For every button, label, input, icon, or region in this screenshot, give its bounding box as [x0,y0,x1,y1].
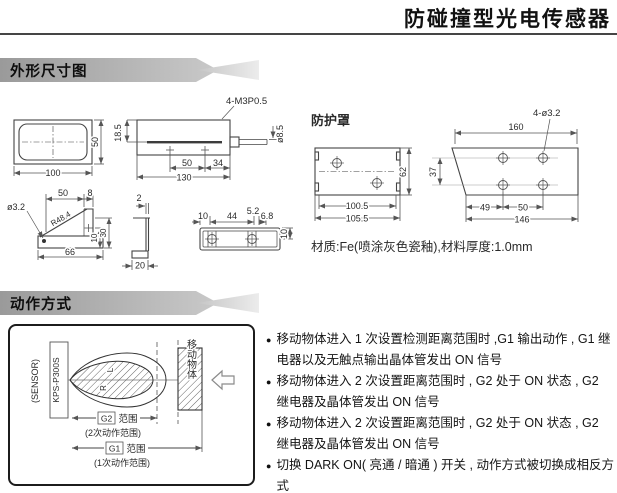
bullet-icon: ● [266,329,271,371]
g1-range-label: 范围 [126,443,145,455]
dim-arm-66: 66 [65,247,75,257]
approach-arrow-icon [212,371,234,389]
zone-label-r: R [99,385,108,391]
label-screws: 4-M3P0.5 [226,96,267,107]
dimension-drawings: 100 50 4-M3P0.5 [0,88,617,288]
bullet-icon: ● [266,413,271,455]
drawing-z-profile: 2 20 [122,193,158,271]
operation-diagram: (SENSOR) KPS-P300S L R 移动物体 G2 范围 (2次动作范… [10,326,253,484]
drawing-front-view: 100 50 [14,120,104,178]
note-item: ● 切换 DARK ON( 亮通 / 暗通 ) 开关 , 动作方式被切换成相反方… [266,455,614,493]
drawing-side-view: 4-M3P0.5 18.5 50 34 130 ø8.5 [113,96,285,183]
dim-arm-30: 30 [99,228,108,237]
datasheet-page: 防碰撞型光电传感器 外形尺寸图 [0,0,617,493]
dim-side-130: 130 [176,173,191,183]
dim-profile-20: 20 [135,261,145,271]
dim-cover-100-5: 100.5 [346,201,369,211]
dim-cover-62: 62 [398,167,408,177]
operation-notes: ● 移动物体进入 1 次设置检测距离范围时 ,G1 输出动作 , G1 继电器以… [266,329,614,493]
g1-sub-label: (1次动作范围) [94,457,150,468]
section-header-dimensions: 外形尺寸图 [10,60,88,81]
note-text: 切换 DARK ON( 亮通 / 暗通 ) 开关 , 动作方式被切换成相反方式 [276,455,614,493]
sensor-model-label: KPS-P300S [51,357,61,403]
material-note: 材质:Fe(喷涂灰色瓷釉),材料厚度:1.0mm [311,239,533,254]
sensor-label: (SENSOR) [30,359,40,403]
dim-front-height: 50 [90,137,100,147]
dim-clamp-10a: 10 [198,211,208,221]
dim-plate-160: 160 [508,122,523,132]
title-underline [0,33,617,35]
dim-side-18-5: 18.5 [113,124,123,142]
dim-arm-hole: ø3.2 [7,202,25,212]
dim-clamp-44: 44 [227,211,237,221]
dim-clamp-5-2: 5.2 [247,206,260,216]
dim-plate-37: 37 [428,167,438,177]
dim-arm-radius: R48.4 [49,209,72,228]
g2-sub-label: (2次动作范围) [85,427,141,438]
drawing-clamp-front: 10 44 5.2 6.8 10 [192,206,293,250]
banner-arrow-icon [197,60,259,80]
dim-arm-8: 8 [87,188,92,198]
section-banner-operation: 动作方式 [0,291,617,315]
section-banner-dimensions: 外形尺寸图 [0,58,617,82]
dim-clamp-10b: 10 [279,229,289,239]
dim-arm-50: 50 [58,188,68,198]
label-protective-cover: 防护罩 [311,113,350,128]
g2-range-label: 范围 [118,413,137,425]
note-text: 移动物体进入 2 次设置距离范围时 , G2 处于 ON 状态 , G2 继电器… [276,413,614,455]
note-item: ● 移动物体进入 2 次设置距离范围时 , G2 处于 ON 状态 , G2 继… [266,413,614,455]
moving-object-label: 移动物体 [185,338,197,380]
banner-arrow-icon [197,293,259,313]
drawing-mounting-plate: 4-ø3.2 160 37 49 50 146 [428,108,578,225]
section-header-operation: 动作方式 [10,293,72,314]
dim-cover-105-5: 105.5 [346,214,369,224]
page-title: 防碰撞型光电传感器 [404,3,611,33]
g1-tag: G1 [109,444,121,454]
drawing-protective-cover: 防护罩 100.5 105.5 62 [311,113,412,224]
note-text: 移动物体进入 1 次设置检测距离范围时 ,G1 输出动作 , G1 继电器以及无… [276,329,614,371]
dim-plate-49: 49 [480,203,490,213]
dim-arm-10: 10 [90,233,99,242]
dim-front-width: 100 [45,168,60,178]
zone-label-l: L [106,367,115,372]
dim-profile-2: 2 [136,193,141,203]
dim-side-50: 50 [182,158,192,168]
dim-cable-dia: ø8.5 [275,125,285,143]
dim-plate-50: 50 [518,203,528,213]
banner-band: 动作方式 [0,291,218,315]
drawing-arm-bracket: ø3.2 50 8 R48.4 10 30 66 [7,188,112,260]
bullet-icon: ● [266,455,271,493]
g2-tag: G2 [101,414,113,424]
note-text: 移动物体进入 2 次设置距离范围时 , G2 处于 ON 状态 , G2 继电器… [276,371,614,413]
dim-side-34: 34 [213,158,223,168]
label-plate-holes: 4-ø3.2 [533,108,560,119]
banner-band: 外形尺寸图 [0,58,218,82]
dim-plate-146: 146 [514,215,529,225]
operation-diagram-box: (SENSOR) KPS-P300S L R 移动物体 G2 范围 (2次动作范… [8,324,255,486]
note-item: ● 移动物体进入 1 次设置检测距离范围时 ,G1 输出动作 , G1 继电器以… [266,329,614,371]
note-item: ● 移动物体进入 2 次设置距离范围时 , G2 处于 ON 状态 , G2 继… [266,371,614,413]
dim-clamp-6-8: 6.8 [261,211,274,221]
bullet-icon: ● [266,371,271,413]
g2-dimension [72,412,157,424]
